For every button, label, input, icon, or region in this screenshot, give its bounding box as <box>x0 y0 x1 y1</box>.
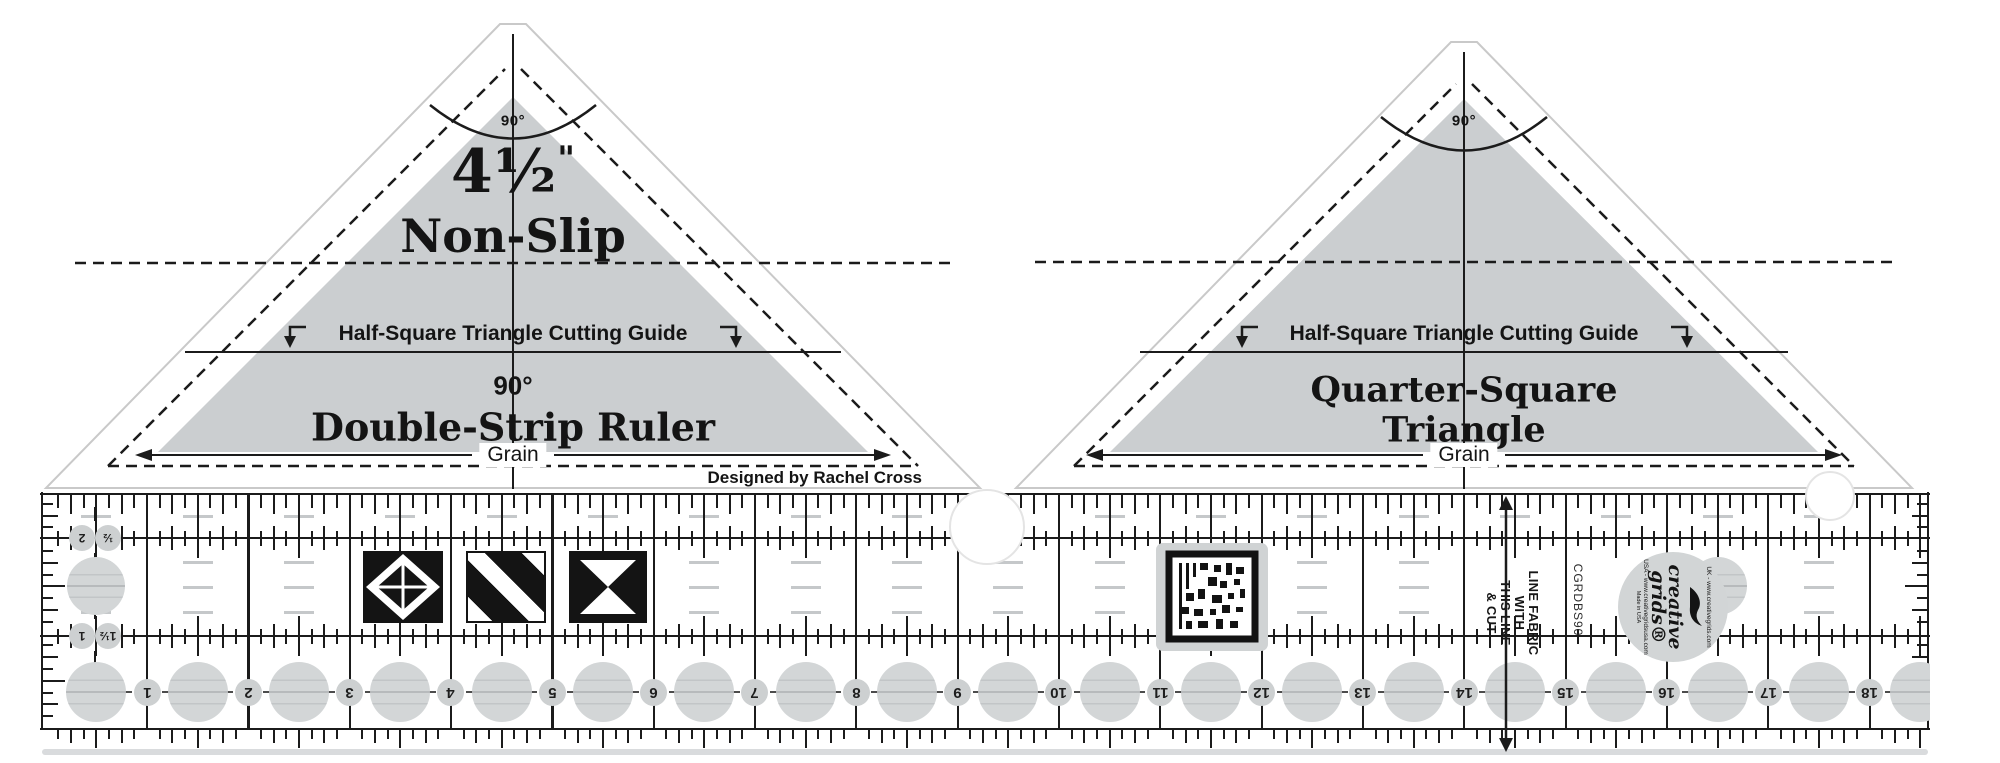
grid-cross-tick <box>1273 531 1275 546</box>
grid-cross-tick <box>475 624 477 648</box>
grid-cross-tick <box>1109 616 1111 656</box>
grid-cross-tick <box>969 629 971 644</box>
edge-tick <box>893 495 895 508</box>
side-tick <box>43 550 53 552</box>
grid-cross-tick <box>285 629 287 644</box>
edge-tick <box>1121 495 1123 508</box>
inch-number: 17 <box>1755 679 1782 706</box>
edge-tick <box>703 730 705 748</box>
side-tick <box>1917 574 1927 576</box>
grid-cross-tick <box>1071 629 1073 644</box>
edge-tick <box>311 495 313 508</box>
grid-cross-tick <box>906 616 908 656</box>
edge-tick <box>931 730 933 743</box>
grid-cross-tick <box>513 531 515 546</box>
designer-credit: Designed by Rachel Cross <box>708 468 922 488</box>
grid-cross-tick <box>1045 629 1047 644</box>
edge-tick <box>1641 495 1643 514</box>
side-tick <box>43 680 65 682</box>
inch-number: 13 <box>1349 679 1376 706</box>
side-tick <box>1912 562 1927 564</box>
grid-cross-tick <box>361 531 363 546</box>
edge-tick <box>1451 730 1453 739</box>
grid-cross-tick <box>817 629 819 644</box>
left-size-label: 4½" <box>451 137 575 207</box>
side-tick <box>43 526 53 528</box>
grid-cross-tick <box>615 629 617 644</box>
grid-cross-tick <box>1425 531 1427 546</box>
grid-cross-tick <box>336 531 338 546</box>
grid-cross-tick <box>1641 526 1643 550</box>
side-tick <box>43 562 58 564</box>
grid-cross-tick <box>1311 616 1313 656</box>
edge-tick <box>475 730 477 743</box>
non-slip-dot <box>877 662 937 722</box>
edge-tick <box>741 495 743 508</box>
edge-tick <box>1451 495 1453 508</box>
grid-cross-tick <box>678 624 680 648</box>
edge-tick <box>1489 495 1491 514</box>
grid-cross-tick <box>881 624 883 648</box>
edge-tick <box>311 730 313 739</box>
side-tick <box>43 692 53 694</box>
edge-tick <box>539 730 541 739</box>
edge-tick <box>1653 730 1655 739</box>
edge-tick <box>1349 730 1351 739</box>
grid-cross-tick <box>1425 629 1427 644</box>
inch-number: 15 <box>1552 679 1579 706</box>
edge-tick <box>982 730 984 743</box>
edge-tick <box>1476 730 1478 739</box>
edge-tick <box>260 730 262 739</box>
grid-cross-tick <box>1793 624 1795 648</box>
edge-tick <box>1235 730 1237 743</box>
side-scale-label: 1½ <box>95 623 121 649</box>
grid-cross-tick <box>1831 531 1833 546</box>
edge-tick <box>843 495 845 508</box>
edge-tick <box>729 730 731 743</box>
grid-cross-tick <box>1755 531 1757 546</box>
grid-cross-tick <box>741 629 743 644</box>
grid-cross-tick <box>665 629 667 644</box>
grid-cross-tick <box>1729 629 1731 644</box>
edge-tick <box>1210 730 1212 748</box>
half-inch-dash <box>1095 611 1125 614</box>
grid-cross-tick <box>1134 526 1136 550</box>
edge-tick <box>171 730 173 743</box>
edge-tick <box>1919 730 1921 748</box>
grid-cross-tick <box>640 531 642 546</box>
non-slip-dot <box>67 557 125 615</box>
hanging-hole-right <box>1805 471 1855 521</box>
inch-number: 3 <box>336 679 363 706</box>
non-slip-dot <box>1080 662 1140 722</box>
edge-tick <box>969 730 971 739</box>
grid-cross-tick <box>1134 624 1136 648</box>
grid-cross-tick <box>311 531 313 546</box>
edge-tick <box>1476 495 1478 508</box>
grid-cross-tick <box>1843 526 1845 550</box>
hanging-hole-center <box>949 489 1025 565</box>
grid-cross-tick <box>387 629 389 644</box>
grid-cross-tick <box>1147 531 1149 546</box>
quilt-block-diamond-icon <box>363 551 443 623</box>
grid-cross-tick <box>1805 531 1807 546</box>
grid-cross-tick <box>881 526 883 550</box>
edge-tick <box>1577 495 1579 508</box>
edge-tick <box>1235 495 1237 514</box>
edge-tick <box>1324 495 1326 508</box>
edge-tick <box>1603 730 1605 739</box>
edge-tick <box>1185 730 1187 743</box>
inch-number: 8 <box>843 679 870 706</box>
grid-cross-tick <box>1628 531 1630 546</box>
inch-number: 4 <box>437 679 464 706</box>
edge-tick <box>1147 730 1149 739</box>
grid-cross-tick <box>1780 629 1782 644</box>
edge-tick <box>665 730 667 739</box>
edge-tick <box>589 495 591 508</box>
edge-tick <box>526 730 528 743</box>
edge-tick <box>1755 495 1757 508</box>
grid-cross-tick <box>779 526 781 550</box>
grid-cross-tick <box>260 531 262 546</box>
half-inch-dash <box>993 586 1023 589</box>
half-inch-dash <box>1399 611 1429 614</box>
edge-tick <box>868 495 870 508</box>
grid-cross-tick <box>779 624 781 648</box>
edge-tick <box>1083 495 1085 514</box>
side-tick <box>43 609 58 611</box>
grid-cross-tick <box>1438 526 1440 550</box>
edge-tick <box>1400 730 1402 739</box>
grid-cross-tick <box>374 526 376 550</box>
side-tick <box>43 503 53 505</box>
grid-cross-tick <box>919 629 921 644</box>
edge-tick <box>615 495 617 508</box>
grid-cross-tick <box>412 629 414 644</box>
edge-tick <box>1273 495 1275 508</box>
edge-tick <box>475 495 477 514</box>
edge-tick <box>222 495 224 514</box>
edge-tick <box>1071 730 1073 739</box>
edge-tick <box>805 730 807 748</box>
edge-tick <box>741 730 743 739</box>
grid-cross-tick <box>197 616 199 656</box>
inch-number: 14 <box>1451 679 1478 706</box>
grid-cross-tick <box>1691 526 1693 550</box>
half-inch-dash <box>284 586 314 589</box>
grid-cross-tick <box>1476 531 1478 546</box>
edge-tick <box>1248 730 1250 739</box>
non-slip-dot <box>66 662 126 722</box>
grid-cross-tick <box>374 624 376 648</box>
edge-tick <box>1489 730 1491 743</box>
edge-tick <box>1780 495 1782 508</box>
edge-tick <box>235 730 237 739</box>
edge-tick <box>260 495 262 508</box>
edge-tick <box>1742 495 1744 514</box>
grid-cross-tick <box>1299 531 1301 546</box>
edge-tick <box>1020 495 1022 508</box>
non-slip-dot <box>573 662 633 722</box>
edge-tick <box>1375 730 1377 739</box>
side-tick <box>1917 621 1927 623</box>
grid-cross-tick <box>1919 518 1921 558</box>
side-tick <box>1917 550 1927 552</box>
non-slip-dot <box>168 662 228 722</box>
grid-cross-tick <box>919 531 921 546</box>
inch-number: 12 <box>1248 679 1275 706</box>
edge-tick <box>640 730 642 739</box>
grid-cross-tick <box>1324 531 1326 546</box>
grid-cross-tick <box>336 629 338 644</box>
half-inch-dash <box>1095 586 1125 589</box>
grid-cross-tick <box>57 531 59 546</box>
edge-tick <box>1843 730 1845 743</box>
edge-tick <box>1387 495 1389 514</box>
grid-cross-tick <box>1311 518 1313 558</box>
grid-cross-tick <box>1780 531 1782 546</box>
side-tick <box>1912 515 1927 517</box>
edge-tick <box>387 495 389 508</box>
edge-tick <box>1691 730 1693 743</box>
grid-cross-tick <box>1096 629 1098 644</box>
edge-tick <box>1109 730 1111 748</box>
grid-cross-tick <box>133 531 135 546</box>
grid-cross-tick <box>222 624 224 648</box>
edge-tick <box>564 495 566 508</box>
edge-tick <box>463 730 465 739</box>
grid-cross-tick <box>893 531 895 546</box>
grid-cross-tick <box>1337 624 1339 648</box>
grid-cross-tick <box>893 629 895 644</box>
grid-cross-tick <box>1299 629 1301 644</box>
inch-number: 18 <box>1856 679 1883 706</box>
grid-cross-tick <box>488 531 490 546</box>
grid-cross-tick <box>1818 616 1820 656</box>
grid-cross-tick <box>1590 624 1592 648</box>
edge-tick <box>792 730 794 739</box>
edge-tick <box>1679 495 1681 508</box>
grid-cross-tick <box>323 624 325 648</box>
grid-cross-tick <box>1387 526 1389 550</box>
edge-tick <box>171 495 173 514</box>
grid-cross-tick <box>805 518 807 558</box>
edge-tick <box>1134 730 1136 743</box>
edge-tick <box>488 730 490 739</box>
grid-cross-tick <box>1704 531 1706 546</box>
logo-content: UK - www.creativegrids.com creative grid… <box>1634 553 1712 661</box>
edge-tick <box>1552 495 1554 508</box>
edge-tick <box>919 495 921 508</box>
grid-cross-tick <box>1843 624 1845 648</box>
grid-cross-tick <box>1603 629 1605 644</box>
edge-tick <box>627 730 629 743</box>
edge-tick <box>843 730 845 739</box>
non-slip-dot <box>269 662 329 722</box>
edge-tick <box>1438 730 1440 743</box>
half-inch-dash <box>1804 586 1834 589</box>
grid-cross-tick <box>868 629 870 644</box>
edge-tick <box>159 730 161 739</box>
edge-tick <box>1172 730 1174 739</box>
grid-cross-tick <box>526 526 528 550</box>
grid-cross-tick <box>1615 616 1617 656</box>
edge-tick <box>1717 730 1719 748</box>
edge-tick <box>298 730 300 748</box>
grid-cross-tick <box>425 526 427 550</box>
edge-tick <box>1679 730 1681 739</box>
grid-cross-tick <box>526 624 528 648</box>
left-size-value: 4½ <box>451 137 557 207</box>
edge-tick <box>273 495 275 514</box>
edge-tick <box>1324 730 1326 739</box>
edge-tick <box>425 730 427 743</box>
non-slip-dot <box>1181 662 1241 722</box>
edge-tick <box>1881 730 1883 739</box>
edge-tick <box>95 730 97 748</box>
grid-cross-tick <box>1603 531 1605 546</box>
edge-tick <box>70 495 72 514</box>
edge-tick <box>1286 730 1288 743</box>
edge-tick <box>767 495 769 508</box>
grid-cross-tick <box>1451 531 1453 546</box>
edge-tick <box>513 495 515 508</box>
left-cutting-guide-label: Half-Square Triangle Cutting Guide <box>339 322 688 346</box>
grid-cross-tick <box>1438 624 1440 648</box>
grid-cross-tick <box>184 531 186 546</box>
half-inch-dash <box>993 611 1023 614</box>
edge-tick <box>209 730 211 739</box>
edge-tick <box>133 730 135 739</box>
edge-tick <box>817 730 819 739</box>
side-tick <box>1912 609 1927 611</box>
side-tick <box>1912 656 1927 658</box>
half-inch-dash <box>183 611 213 614</box>
inch-number: 1 <box>134 679 161 706</box>
edge-tick <box>1286 495 1288 514</box>
edge-tick <box>108 730 110 739</box>
half-inch-dash <box>689 586 719 589</box>
grid-cross-tick <box>412 531 414 546</box>
grid-cross-tick <box>387 531 389 546</box>
grid-cross-tick <box>792 629 794 644</box>
edge-tick <box>1121 730 1123 739</box>
inch-number: 5 <box>539 679 566 706</box>
inch-number: 6 <box>640 679 667 706</box>
grid-cross-tick <box>931 624 933 648</box>
grid-cross-tick <box>627 526 629 550</box>
edge-tick <box>1349 495 1351 508</box>
edge-tick <box>1197 495 1199 508</box>
half-inch-dash <box>892 611 922 614</box>
edge-tick <box>615 730 617 739</box>
grid-cross-tick <box>323 526 325 550</box>
side-tick <box>1917 597 1927 599</box>
edge-tick <box>716 495 718 508</box>
grid-cross-tick <box>425 624 427 648</box>
non-slip-dot <box>370 662 430 722</box>
grid-cross-tick <box>843 531 845 546</box>
grid-cross-tick <box>1894 526 1896 550</box>
grid-cross-tick <box>1527 531 1529 546</box>
edge-tick <box>387 730 389 739</box>
side-tick <box>43 703 58 705</box>
ruler-product-photo: 90° 4½" Non-Slip Half-Square Triangle Cu… <box>0 0 2000 763</box>
inch-number: 9 <box>944 679 971 706</box>
edge-tick <box>1172 495 1174 508</box>
grid-cross-tick <box>640 629 642 644</box>
edge-tick <box>1311 730 1313 748</box>
grid-cross-tick <box>729 624 731 648</box>
grid-cross-tick <box>1552 629 1554 644</box>
grid-cross-tick <box>1349 629 1351 644</box>
grid-cross-tick <box>209 531 211 546</box>
half-inch-dash <box>183 586 213 589</box>
edge-tick <box>729 495 731 514</box>
half-inch-dash <box>689 611 719 614</box>
edge-tick <box>488 495 490 508</box>
edge-tick <box>1894 495 1896 514</box>
edge-tick <box>1387 730 1389 743</box>
edge-tick <box>944 495 946 508</box>
grid-cross-tick <box>513 629 515 644</box>
grid-cross-tick <box>1489 526 1491 550</box>
side-scale-label: 2 <box>69 525 95 551</box>
half-inch-dash <box>183 561 213 564</box>
side-tick <box>43 597 53 599</box>
half-inch-dash <box>892 586 922 589</box>
non-slip-dot <box>1688 662 1748 722</box>
edge-tick <box>1299 495 1301 508</box>
half-inch-dash <box>284 561 314 564</box>
edge-tick <box>1628 730 1630 739</box>
grid-cross-tick <box>678 526 680 550</box>
grid-cross-tick <box>1717 518 1719 558</box>
logo-made-in: Made in USA <box>1634 553 1641 661</box>
grid-cross-tick <box>843 629 845 644</box>
grid-cross-tick <box>627 624 629 648</box>
inch-number: 10 <box>1045 679 1072 706</box>
edge-tick <box>1134 495 1136 514</box>
edge-tick <box>463 495 465 508</box>
side-tick <box>43 668 53 670</box>
edge-tick <box>323 495 325 514</box>
inch-number: 11 <box>1147 679 1174 706</box>
edge-tick <box>1147 495 1149 508</box>
edge-tick <box>577 730 579 743</box>
edge-tick <box>1729 730 1731 739</box>
non-slip-dot <box>1282 662 1342 722</box>
edge-tick <box>83 495 85 508</box>
edge-tick <box>919 730 921 739</box>
edge-tick <box>627 495 629 514</box>
grid-cross-tick <box>1615 518 1617 558</box>
edge-tick <box>1425 495 1427 508</box>
edge-tick <box>1096 495 1098 508</box>
edge-tick <box>1691 495 1693 514</box>
grid-cross-tick <box>298 616 300 656</box>
non-slip-dot <box>674 662 734 722</box>
grid-cross-tick <box>1856 531 1858 546</box>
right-grain-label: Grain <box>1430 443 1497 467</box>
edge-tick <box>1223 495 1225 508</box>
left-apex-angle-label: 90° <box>501 113 525 130</box>
grid-cross-tick <box>1375 629 1377 644</box>
edge-tick <box>1007 730 1009 748</box>
grid-cross-tick <box>311 629 313 644</box>
